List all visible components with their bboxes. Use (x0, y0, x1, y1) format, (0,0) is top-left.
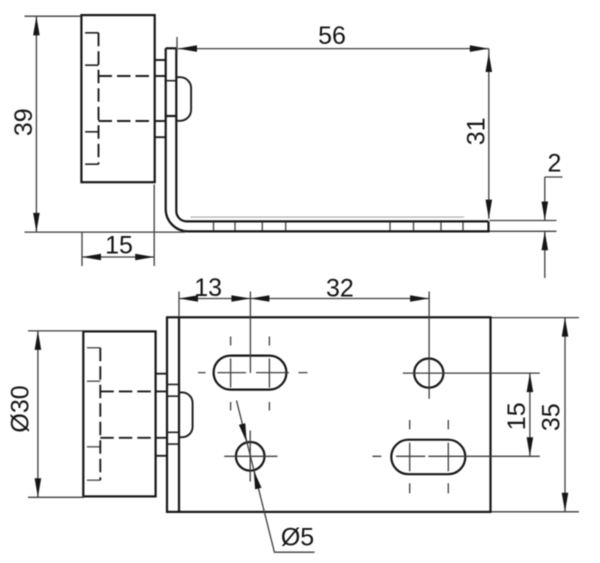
svg-text:56: 56 (318, 22, 346, 50)
svg-text:15: 15 (503, 402, 531, 430)
svg-text:2: 2 (548, 149, 562, 177)
svg-text:32: 32 (326, 274, 354, 302)
svg-text:35: 35 (537, 403, 565, 431)
svg-text:15: 15 (105, 232, 133, 260)
svg-text:13: 13 (194, 274, 222, 302)
svg-text:39: 39 (10, 108, 38, 136)
svg-text:31: 31 (463, 117, 491, 145)
svg-text:Ø30: Ø30 (7, 385, 35, 432)
svg-text:Ø5: Ø5 (281, 524, 314, 552)
